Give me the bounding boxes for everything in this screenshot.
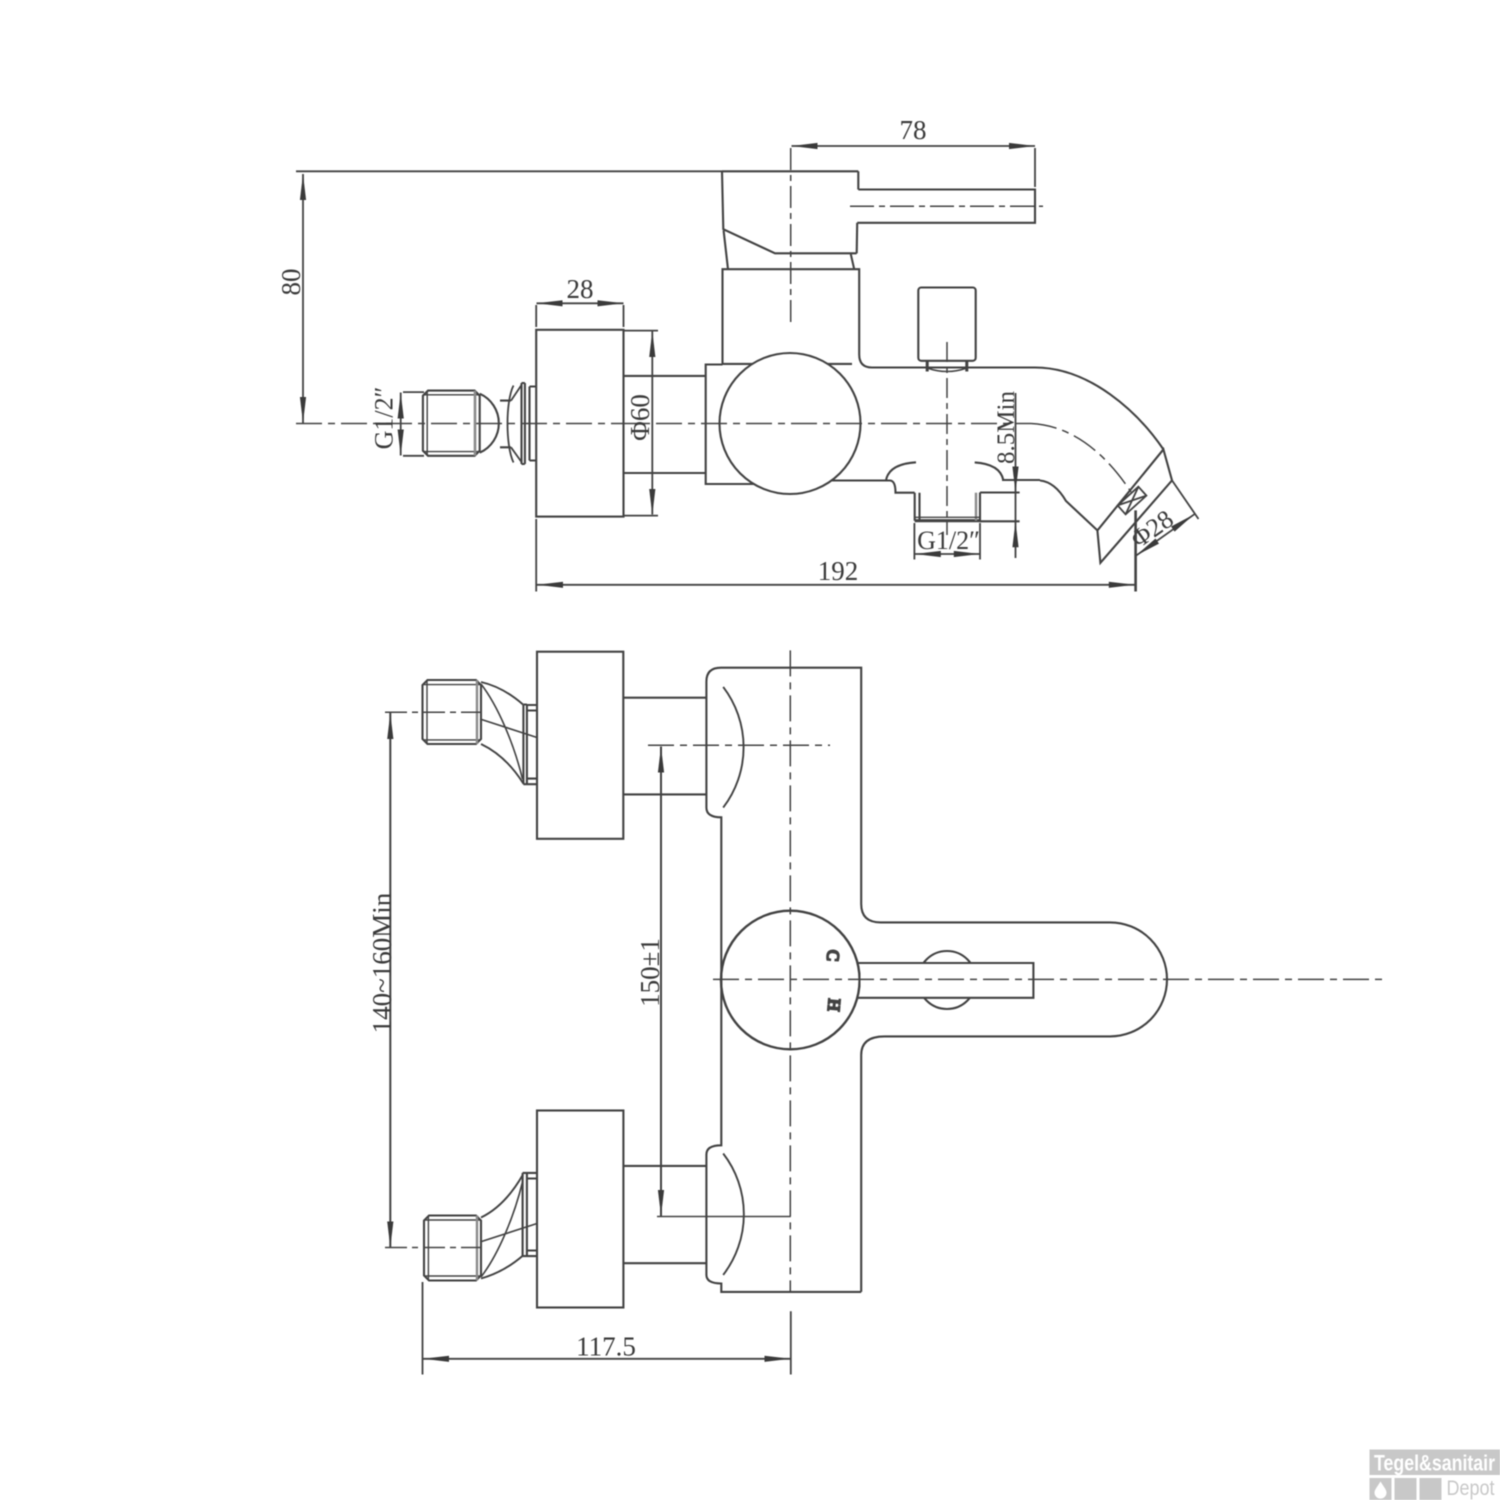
svg-text:G1/2″: G1/2″ <box>370 387 399 450</box>
svg-text:Tegel&sanitair: Tegel&sanitair <box>1374 1451 1495 1476</box>
svg-text:Φ60: Φ60 <box>625 394 655 441</box>
svg-text:8.5Min: 8.5Min <box>993 391 1020 464</box>
svg-text:C: C <box>823 949 843 962</box>
svg-text:Depot: Depot <box>1447 1477 1495 1500</box>
svg-text:G1/2″: G1/2″ <box>917 526 980 555</box>
svg-text:192: 192 <box>818 556 859 586</box>
svg-text:150±1: 150±1 <box>635 938 665 1007</box>
svg-text:140~160Min: 140~160Min <box>367 892 397 1033</box>
svg-text:28: 28 <box>567 274 594 304</box>
svg-text:117.5: 117.5 <box>576 1332 636 1362</box>
svg-text:Φ28: Φ28 <box>1125 504 1179 554</box>
svg-text:H: H <box>824 998 844 1012</box>
svg-text:78: 78 <box>900 115 927 145</box>
svg-text:80: 80 <box>276 269 306 296</box>
